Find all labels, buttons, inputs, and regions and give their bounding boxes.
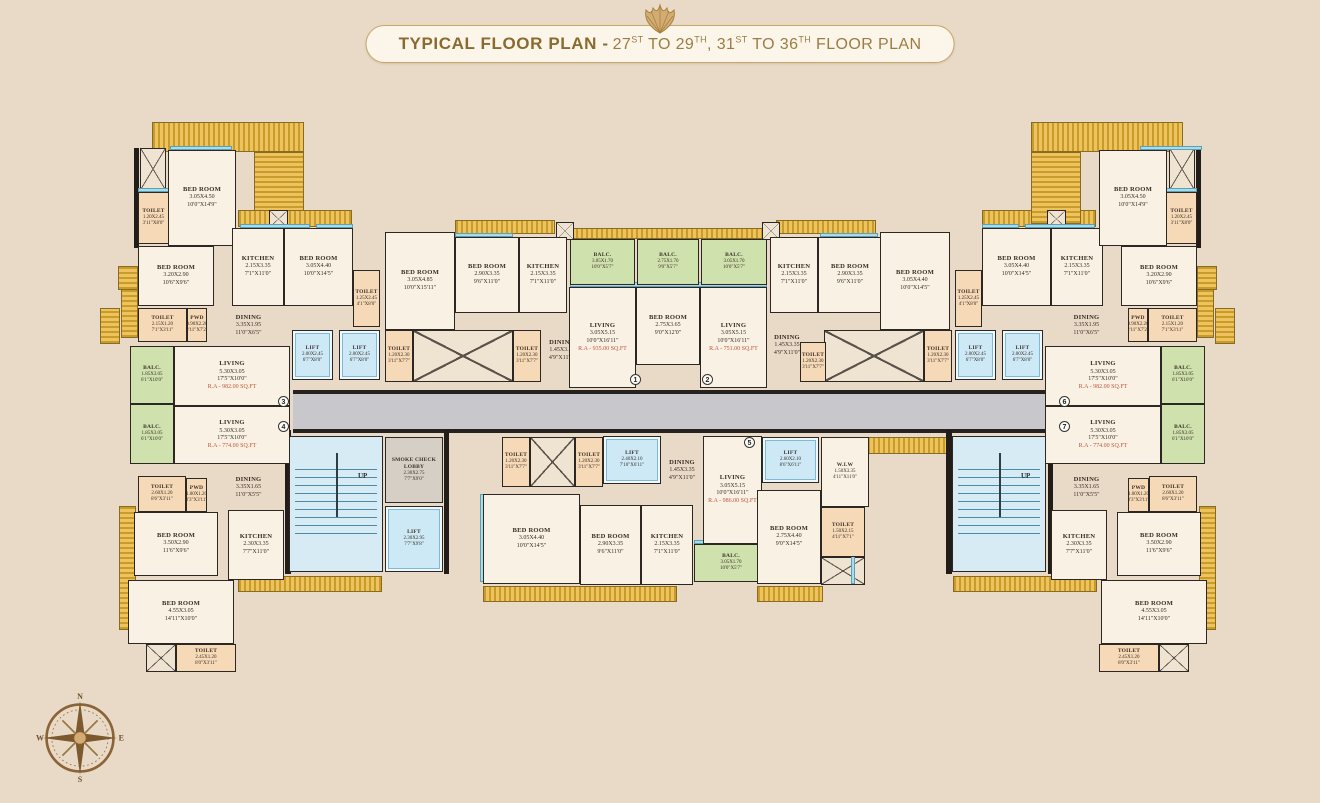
room: DINING1.45X3.354'9"X11'0" (661, 436, 703, 506)
staircase: UP (952, 436, 1046, 572)
room-label: BED ROOM2.90X3.359'6"X11'0" (468, 263, 506, 287)
room-name: BED ROOM (770, 525, 808, 534)
room-label: BALC.1.85X3.056'1"X10'0" (141, 424, 163, 443)
room-name: DINING (669, 459, 695, 468)
balcony: BALC.1.85X3.056'1"X10'0" (130, 404, 174, 464)
room-dimension: 4'1"X8'0" (957, 302, 979, 308)
room: BED ROOM3.50X2.9011'6"X9'6" (1117, 512, 1201, 576)
room-name: TOILET (957, 289, 979, 296)
parapet-hatch-strip (1215, 308, 1235, 344)
room-name: BALC. (720, 553, 742, 560)
room-name: TOILET (1118, 648, 1140, 655)
room-dimension: 2.90X3.35 (831, 271, 869, 279)
room-dimension: 7'1"X11'0" (778, 279, 811, 287)
compass-east-label: E (119, 734, 124, 743)
room-label: BALC.3.05X1.7010'0"X5'7" (723, 252, 745, 271)
toilet-room: TOILET1.20X2.303'11"X7'7" (800, 342, 826, 382)
shaft-cross (1169, 148, 1195, 190)
room-dimension: 5.30X3.05 (1079, 369, 1128, 377)
room-dimension: 7'1"X11'0" (1061, 271, 1094, 279)
flat-number-marker: 7 (1059, 421, 1070, 432)
room-name: SMOKE CHECK LOBBY (386, 457, 442, 471)
room: BED ROOM3.05X4.4010'0"X14'5" (880, 232, 950, 330)
compass-north-label: N (77, 692, 83, 701)
room: BED ROOM3.05X4.5010'0"X14'9" (168, 150, 236, 246)
room-dimension: 10'0"X16'11" (708, 490, 757, 498)
balcony: BALC.1.85X3.056'1"X10'0" (130, 346, 174, 404)
room-dimension: 9'0"X14'5" (770, 541, 808, 549)
room-name: BALC. (141, 424, 163, 431)
room-label: BED ROOM3.05X4.4010'0"X14'5" (997, 255, 1035, 279)
room-label: BED ROOM3.20X2.9010'6"X9'6" (157, 264, 195, 288)
room-name: PWD (187, 315, 207, 322)
title-text: 27 (613, 36, 632, 53)
room-dimension: 10'0"X14'5" (896, 285, 934, 293)
room-label: LIVING3.05X5.1510'0"X16'11"R.A - 751.00 … (709, 322, 758, 354)
room-dimension: 3.05X4.50 (1114, 194, 1152, 202)
room-dimension: 10'0"X5'7" (592, 265, 614, 271)
room-label: DINING3.35X1.9511'0"X6'5" (1073, 314, 1099, 338)
room-label: BALC.1.85X3.056'1"X10'0" (1172, 424, 1194, 443)
room-dimension: 17'5"X10'0" (1079, 376, 1128, 384)
room-dimension: 2.15X3.35 (778, 271, 811, 279)
toilet-room: TOILET2.60X1.208'6"X3'11" (138, 476, 186, 512)
room-name: TOILET (505, 452, 527, 459)
room-dimension: 6'1"X10'0" (1172, 437, 1194, 443)
room: BED ROOM3.50X2.9011'6"X9'6" (134, 512, 218, 576)
room: BED ROOM3.05X4.5010'0"X14'9" (1099, 150, 1167, 246)
room-name: LIFT (965, 345, 986, 352)
room-name: DINING (235, 476, 261, 485)
lift: LIFT2.00X2.456'7"X8'0" (339, 330, 380, 380)
room-name: KITCHEN (651, 533, 684, 542)
shaft-cross (146, 644, 176, 672)
room-label: BALC.1.85X3.056'1"X10'0" (1172, 365, 1194, 384)
toilet-room: TOILET1.50X2.154'11"X7'1" (821, 507, 865, 557)
room-dimension: 10'0"X16'11" (709, 338, 758, 346)
room-label: SMOKE CHECK LOBBY2.30X2.757'7"X9'0" (386, 457, 442, 483)
parapet-hatch-strip (776, 220, 876, 234)
room-dimension: 9'6"X11'0" (831, 279, 869, 287)
room: BED ROOM3.05X4.4010'0"X14'5" (982, 228, 1051, 306)
staircase: UP (289, 436, 383, 572)
toilet-room: TOILET1.20X2.453'11"X8'0" (1166, 192, 1197, 244)
room-name: BED ROOM (512, 527, 550, 536)
room-name: BED ROOM (157, 264, 195, 273)
room-label: TOILET1.20X2.303'11"X7'7" (505, 452, 527, 471)
room-dimension: 10'0"X5'7" (720, 566, 742, 572)
balcony: BALC.1.85X3.056'1"X10'0" (1161, 346, 1205, 404)
room-label: PWD1.00X1.203'3"X3'11" (1128, 485, 1149, 504)
toilet-room: TOILET1.20X2.303'11"X7'7" (575, 437, 603, 487)
toilet-room: TOILET1.20X2.303'11"X7'7" (385, 330, 413, 382)
room-label: LIVING5.30X3.0517'5"X10'0"R.A - 982.00 S… (1079, 360, 1128, 392)
room-dimension: 9'0"X5'7" (657, 265, 678, 271)
room-dimension: 2.30X3.35 (240, 541, 273, 549)
room-name: BALC. (723, 252, 745, 259)
room-name: TOILET (151, 484, 173, 491)
room-dimension: 11'0"X5'5" (235, 492, 261, 500)
room-label: BED ROOM3.05X4.4010'0"X14'5" (299, 255, 337, 279)
room-label: BED ROOM3.05X4.8510'0"X15'11" (401, 269, 439, 293)
lift: LIFT2.40X2.107'10"X6'11" (603, 436, 661, 484)
room-dimension: 3.05X5.15 (709, 330, 758, 338)
lift: LIFT2.60X2.108'6"X6'11" (762, 437, 819, 483)
room-dimension: 7'1"X11'0" (527, 279, 560, 287)
room-dimension: 11'0"X5'5" (1073, 492, 1099, 500)
parapet-hatch-strip (455, 220, 555, 234)
room-name: BALC. (1172, 424, 1194, 431)
room-dimension: 1.45X3.35 (669, 467, 695, 475)
room-dimension: 14'11"X10'0" (162, 616, 200, 624)
stair-divider (999, 453, 1001, 517)
room-name: BALC. (1172, 365, 1194, 372)
room-dimension: 10'0"X14'5" (299, 271, 337, 279)
room-name: DINING (774, 334, 800, 343)
room-label: DINING3.35X1.6511'0"X5'5" (235, 476, 261, 500)
room-name: BED ROOM (649, 314, 687, 323)
room-dimension: 10'0"X14'9" (1114, 202, 1152, 210)
room-dimension: 8'0"X3'11" (195, 661, 217, 667)
room-label: PWD0.90X2.202'11"X7'2" (187, 315, 207, 334)
room-name: TOILET (1161, 315, 1183, 322)
room-label: BALC.3.05X1.7010'0"X5'7" (720, 553, 742, 572)
room-dimension: 3.05X4.85 (401, 277, 439, 285)
shaft-cross (824, 330, 924, 382)
room-dimension: 7'1"X3'11" (151, 328, 173, 334)
room-dimension: 3.05X5.15 (708, 483, 757, 491)
room-name: BED ROOM (468, 263, 506, 272)
room-dimension: 4'11"X11'0" (833, 475, 857, 481)
flat-number-marker: 4 (278, 421, 289, 432)
room-dimension: 2.15X3.35 (242, 263, 275, 271)
room-dimension: 9'0"X12'0" (649, 330, 687, 338)
title-superscript: ST (631, 35, 643, 45)
room-dimension: 10'0"X14'5" (512, 543, 550, 551)
room: KITCHEN2.15X3.357'1"X11'0" (641, 505, 693, 585)
room-label: LIVING5.30X3.0517'5"X10'0"R.A - 982.00 S… (208, 360, 257, 392)
room-label: TOILET1.20X2.453'11"X8'0" (142, 208, 164, 227)
flat-number-marker: 5 (744, 437, 755, 448)
room: W.I.W1.50X3.354'11"X11'0" (821, 437, 869, 507)
room: DINING3.35X1.9511'0"X6'5" (1045, 306, 1128, 346)
room-dimension: 7'7"X9'0" (386, 477, 442, 483)
title-superscript: TH (694, 35, 707, 45)
parapet-hatch-strip (570, 228, 767, 239)
room-name: KITCHEN (1061, 255, 1094, 264)
room-dimension: 6'7"X8'0" (349, 358, 370, 364)
room-name: KITCHEN (240, 533, 273, 542)
room-label: TOILET2.45X1.208'0"X3'11" (1118, 648, 1140, 667)
room-area: R.A - 751.00 SQ.FT (709, 346, 758, 354)
room-label: BED ROOM3.05X4.5010'0"X14'9" (1114, 186, 1152, 210)
room-label: TOILET1.25X2.454'1"X8'0" (355, 289, 377, 308)
room-dimension: 3.05X4.40 (997, 263, 1035, 271)
room: KITCHEN2.15X3.357'1"X11'0" (232, 228, 284, 306)
stair-up-label: UP (358, 472, 367, 480)
toilet-room: PWD1.00X1.203'3"X3'11" (1128, 478, 1149, 512)
room-label: TOILET1.20X2.303'11"X7'7" (578, 452, 600, 471)
compass-south-label: S (78, 775, 82, 784)
page-subtitle: 27ST TO 29TH, 31ST TO 36TH FLOOR PLAN (613, 36, 922, 53)
room-label: LIFT2.00X2.456'7"X8'0" (349, 345, 370, 364)
room-dimension: 3.50X2.90 (1140, 540, 1178, 548)
toilet-room: TOILET1.20X2.303'11"X7'7" (513, 330, 541, 382)
room-name: TOILET (802, 352, 824, 359)
title-superscript: TH (798, 35, 811, 45)
shaft-cross (413, 330, 513, 382)
room-name: KITCHEN (527, 263, 560, 272)
room-dimension: 3.05X5.15 (578, 330, 627, 338)
toilet-room: TOILET1.25X2.454'1"X8'0" (955, 270, 982, 327)
room-name: TOILET (516, 346, 538, 353)
room-name: BALC. (141, 365, 163, 372)
room: BED ROOM3.20X2.9010'6"X9'6" (1121, 246, 1197, 306)
toilet-room: TOILET1.20X2.303'11"X7'7" (502, 437, 530, 487)
toilet-room: TOILET1.20X2.303'11"X7'7" (924, 330, 952, 382)
room: LIVING3.05X5.1510'0"X16'11"R.A - 935.00 … (569, 287, 636, 388)
room-dimension: 8'6"X3'11" (151, 497, 173, 503)
lift: LIFT2.00X2.456'7"X8'0" (292, 330, 333, 380)
room-dimension: 11'6"X9'6" (1140, 548, 1178, 556)
room-label: BED ROOM2.75X3.659'0"X12'0" (649, 314, 687, 338)
room: LIVING3.05X5.1510'0"X16'11"R.A - 751.00 … (700, 287, 767, 388)
room-name: BED ROOM (401, 269, 439, 278)
room-dimension: 6'7"X8'0" (302, 358, 323, 364)
room-dimension: 7'7"X11'0" (1063, 549, 1096, 557)
flat-number-marker: 2 (702, 374, 713, 385)
room-label: BED ROOM3.05X4.5010'0"X14'9" (183, 186, 221, 210)
room-dimension: 7'7"X11'0" (240, 549, 273, 557)
room: LIVING5.30X3.0517'5"X10'0"R.A - 774.00 S… (174, 406, 290, 464)
room-name: BED ROOM (162, 600, 200, 609)
room-label: TOILET1.20X2.303'11"X7'7" (927, 346, 949, 365)
room-name: LIFT (1012, 345, 1033, 352)
shell-logo-icon (640, 2, 680, 34)
room-name: LIVING (709, 322, 758, 331)
room-label: PWD1.00X1.203'3"X3'11" (186, 485, 207, 504)
room-name: BED ROOM (299, 255, 337, 264)
room-dimension: 10'0"X14'9" (183, 202, 221, 210)
room-label: TOILET2.15X1.207'1"X3'11" (1161, 315, 1183, 334)
stair-up-label: UP (1021, 472, 1030, 480)
room-name: BALC. (657, 252, 678, 259)
room-dimension: 4.55X3.05 (162, 608, 200, 616)
room: DINING3.35X1.9511'0"X6'5" (207, 306, 290, 346)
room-dimension: 2.90X3.35 (468, 271, 506, 279)
room-label: KITCHEN2.30X3.357'7"X11'0" (1063, 533, 1096, 557)
flat-number-marker: 6 (1059, 396, 1070, 407)
room: DINING3.35X1.6511'0"X5'5" (207, 464, 290, 512)
floor-plan-page: TYPICAL FLOOR PLAN - 27ST TO 29TH, 31ST … (0, 0, 1320, 803)
title-text: TO 29 (644, 36, 695, 53)
room-dimension: 3.05X4.40 (512, 535, 550, 543)
room-dimension: 3.35X1.95 (235, 322, 261, 330)
parapet-hatch-strip (1197, 266, 1217, 290)
room-dimension: 3'3"X3'11" (1128, 498, 1149, 504)
room-dimension: 4'9"X11'0" (774, 350, 800, 358)
room-dimension: 5.30X3.05 (208, 369, 257, 377)
room: LIVING5.30X3.0517'5"X10'0"R.A - 774.00 S… (1045, 406, 1161, 464)
room-name: BALC. (592, 252, 614, 259)
room-name: BED ROOM (591, 533, 629, 542)
room-dimension: 8'0"X3'11" (1118, 661, 1140, 667)
shaft-cross (140, 148, 166, 190)
parapet-hatch-strip (757, 586, 823, 602)
room-dimension: 3.35X1.65 (1073, 484, 1099, 492)
smoke-check-lobby: SMOKE CHECK LOBBY2.30X2.757'7"X9'0" (385, 437, 443, 503)
room: KITCHEN2.30X3.357'7"X11'0" (1051, 510, 1107, 580)
room: KITCHEN2.15X3.357'1"X11'0" (519, 237, 567, 313)
room-area: R.A - 982.00 SQ.FT (208, 384, 257, 392)
room-label: KITCHEN2.15X3.357'1"X11'0" (651, 533, 684, 557)
room-dimension: 3'11"X7'7" (927, 359, 949, 365)
room-dimension: 6'7"X8'0" (965, 358, 986, 364)
room-dimension: 5.30X3.05 (1079, 428, 1128, 436)
room-name: DINING (235, 314, 261, 323)
room-name: PWD (1128, 485, 1149, 492)
room-dimension: 3.50X2.90 (157, 540, 195, 548)
room-label: TOILET2.60X1.208'6"X3'11" (1162, 484, 1184, 503)
room-area: R.A - 986.00 SQ.FT (708, 498, 757, 506)
balcony: BALC.1.85X3.056'1"X10'0" (1161, 404, 1205, 464)
toilet-room: TOILET2.15X1.207'1"X3'11" (138, 308, 187, 342)
room-name: KITCHEN (242, 255, 275, 264)
room-name: TOILET (388, 346, 410, 353)
title-superscript: ST (735, 35, 747, 45)
toilet-room: PWD1.00X1.203'3"X3'11" (186, 478, 207, 512)
room-name: LIVING (1079, 419, 1128, 428)
room-label: LIVING5.30X3.0517'5"X10'0"R.A - 774.00 S… (1079, 419, 1128, 451)
page-title: TYPICAL FLOOR PLAN - (399, 34, 609, 53)
room-label: W.I.W1.50X3.354'11"X11'0" (833, 462, 857, 481)
room-label: TOILET1.50X2.154'11"X7'1" (832, 522, 854, 541)
room: LIVING5.30X3.0517'5"X10'0"R.A - 982.00 S… (174, 346, 290, 406)
room-dimension: 4'1"X8'0" (355, 302, 377, 308)
room-dimension: 3.35X1.95 (1073, 322, 1099, 330)
room-name: W.I.W (833, 462, 857, 469)
room-dimension: 17'5"X10'0" (208, 435, 257, 443)
lift: LIFT2.30X2.957'7"X9'8" (385, 506, 443, 572)
room-name: LIVING (578, 322, 627, 331)
room-dimension: 3'11"X7'7" (802, 365, 824, 371)
room-name: LIFT (302, 345, 323, 352)
room-name: LIFT (780, 450, 802, 457)
room-area: R.A - 774.00 SQ.FT (208, 443, 257, 451)
room-name: LIVING (708, 474, 757, 483)
room: KITCHEN2.30X3.357'7"X11'0" (228, 510, 284, 580)
room-dimension: 3.20X2.90 (1140, 272, 1178, 280)
room-dimension: 2'11"X7'2" (187, 328, 207, 334)
room-dimension: 4'11"X7'1" (832, 535, 854, 541)
toilet-room: TOILET1.25X2.454'1"X8'0" (353, 270, 380, 327)
room-name: DINING (1073, 476, 1099, 485)
stair-divider (336, 453, 338, 517)
room-name: BED ROOM (1114, 186, 1152, 195)
room-label: KITCHEN2.15X3.357'1"X11'0" (527, 263, 560, 287)
room-name: LIFT (349, 345, 370, 352)
parapet-hatch-strip (1197, 288, 1214, 338)
room: BED ROOM2.90X3.359'6"X11'0" (580, 505, 641, 585)
room-dimension: 2.75X3.65 (649, 322, 687, 330)
toilet-room: TOILET2.45X1.208'0"X3'11" (1099, 644, 1159, 672)
room-area: R.A - 982.00 SQ.FT (1079, 384, 1128, 392)
room-name: BED ROOM (1135, 600, 1173, 609)
room-label: BED ROOM3.50X2.9011'6"X9'6" (157, 532, 195, 556)
room-label: TOILET2.45X1.208'0"X3'11" (195, 648, 217, 667)
title-text: TO 36 (748, 36, 799, 53)
room-dimension: 6'1"X10'0" (1172, 378, 1194, 384)
balcony: BALC.3.05X1.7010'0"X5'7" (570, 239, 635, 285)
room-name: PWD (186, 485, 207, 492)
parapet-hatch-strip (862, 437, 954, 454)
parapet-hatch-strip (118, 266, 138, 290)
room-name: TOILET (151, 315, 173, 322)
room-label: BED ROOM2.90X3.359'6"X11'0" (591, 533, 629, 557)
room-name: TOILET (142, 208, 164, 215)
shaft-cross (530, 437, 575, 487)
room-label: LIFT2.00X2.456'7"X8'0" (1012, 345, 1033, 364)
room-label: DINING1.45X3.354'9"X11'0" (774, 334, 800, 358)
room-name: LIFT (403, 529, 424, 536)
room-dimension: 3.05X4.40 (896, 277, 934, 285)
room-label: TOILET2.15X1.207'1"X3'11" (151, 315, 173, 334)
room-dimension: 3.20X2.90 (157, 272, 195, 280)
room-name: DINING (1073, 314, 1099, 323)
toilet-room: TOILET2.15X1.207'1"X3'11" (1148, 308, 1197, 342)
room-dimension: 3.05X4.40 (299, 263, 337, 271)
room-area: R.A - 774.00 SQ.FT (1079, 443, 1128, 451)
room-label: BED ROOM3.05X4.4010'0"X14'5" (896, 269, 934, 293)
room-name: LIVING (208, 360, 257, 369)
room-name: LIVING (1079, 360, 1128, 369)
room-dimension: 17'5"X10'0" (1079, 435, 1128, 443)
room-dimension: 2.90X3.35 (591, 541, 629, 549)
room-dimension: 10'0"X14'5" (997, 271, 1035, 279)
room: BED ROOM3.20X2.9010'6"X9'6" (138, 246, 214, 306)
room-name: TOILET (355, 289, 377, 296)
room-dimension: 2.15X3.35 (1061, 263, 1094, 271)
room-dimension: 3'11"X7'7" (388, 359, 410, 365)
room-dimension: 10'0"X5'7" (723, 265, 745, 271)
room-label: LIFT2.30X2.957'7"X9'8" (403, 529, 424, 548)
room-label: DINING3.35X1.9511'0"X6'5" (235, 314, 261, 338)
room-label: TOILET2.60X1.208'6"X3'11" (151, 484, 173, 503)
room-dimension: 14'11"X10'0" (1135, 616, 1173, 624)
room-label: KITCHEN2.15X3.357'1"X11'0" (1061, 255, 1094, 279)
flat-number-marker: 3 (278, 396, 289, 407)
compass-star-icon (36, 694, 124, 782)
room-name: PWD (1128, 315, 1148, 322)
room: BED ROOM4.55X3.0514'11"X10'0" (128, 580, 234, 644)
compass-west-label: W (36, 734, 44, 743)
room-name: TOILET (832, 522, 854, 529)
room-dimension: 3.35X1.65 (235, 484, 261, 492)
room-label: LIFT2.40X2.107'10"X6'11" (620, 450, 644, 469)
room-label: TOILET1.20X2.303'11"X7'7" (388, 346, 410, 365)
toilet-room: TOILET2.60X1.208'6"X3'11" (1149, 476, 1197, 512)
room: LIVING3.05X5.1510'0"X16'11"R.A - 986.00 … (703, 436, 762, 544)
room-dimension: 10'0"X16'11" (578, 338, 627, 346)
room-label: DINING3.35X1.6511'0"X5'5" (1073, 476, 1099, 500)
room-dimension: 6'7"X8'0" (1012, 358, 1033, 364)
room-label: BALC.2.75X1.709'0"X5'7" (657, 252, 678, 271)
room-dimension: 5.30X3.05 (208, 428, 257, 436)
room: KITCHEN2.15X3.357'1"X11'0" (1051, 228, 1103, 306)
room-dimension: 3'11"X7'7" (516, 359, 538, 365)
room-label: PWD0.90X2.202'11"X7'2" (1128, 315, 1148, 334)
parapet-hatch-strip (100, 308, 120, 344)
